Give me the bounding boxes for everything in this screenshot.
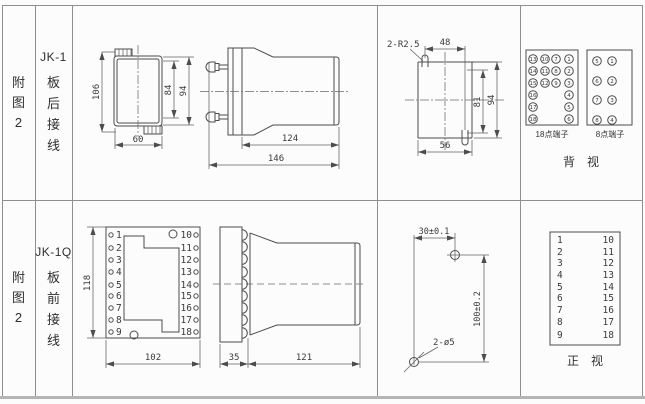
- dim-60-label: 60: [133, 135, 144, 145]
- row2-figure-label: 附 图 2: [12, 268, 25, 328]
- terminal-number: 8: [554, 69, 558, 75]
- dim-56-label: 56: [440, 141, 451, 151]
- table-cell: 8: [557, 317, 563, 328]
- terminal-label: 2: [116, 243, 122, 254]
- row2-model-cell: JK-1Q 板 前 接 线: [35, 200, 72, 396]
- grid-col-divider-3: [377, 5, 378, 396]
- terminal-label: 11: [181, 243, 193, 254]
- terminal-number: 17: [530, 105, 537, 111]
- table-cell: 9: [557, 330, 563, 341]
- dim-118-label: 118: [83, 275, 93, 291]
- table-cell: 16: [603, 305, 615, 316]
- slot-note-label: 2-R2.5: [387, 40, 420, 50]
- table-left-column: 1 2 3 4 5 6 7 8 9: [557, 235, 563, 341]
- panel-cutout-drawing: 48 2-R2.5 81 94 56: [383, 32, 517, 162]
- row1-model-label: JK-1: [40, 50, 67, 64]
- terminal-label: 13: [181, 267, 192, 278]
- terminal-label: 3: [116, 255, 122, 266]
- row2-wiring-label: 板 前 接 线: [47, 267, 60, 351]
- table-cell: 13: [603, 270, 614, 281]
- terminal-number: 12: [542, 81, 549, 87]
- front-right-terminals: 10 11 12 13 14 15 16 17 18: [181, 230, 199, 338]
- terminal-label: 18: [181, 327, 193, 338]
- front-terminal-table: 1 2 3 4 5 6 7 8 9 10 11 12 13 14 15 16 1…: [530, 225, 645, 375]
- side-view-drawing: 124 146: [200, 36, 352, 172]
- terminal-label: 12: [181, 255, 192, 266]
- terminal-circles-18: 13 10 7 1 14 11 8 2 15 12 9 3 16 4 17 5 …: [529, 55, 574, 124]
- table-cell: 6: [557, 293, 563, 304]
- case-body: [200, 48, 350, 135]
- dim-124-label: 124: [282, 134, 298, 144]
- row1-model-cell: JK-1 板 后 接 线: [35, 5, 72, 200]
- terminal-number: 10: [542, 57, 549, 63]
- table-right-column: 10 11 12 13 14 15 16 17 18: [603, 235, 615, 341]
- terminal-number: 5: [567, 105, 571, 111]
- rear-view-drawing: 106 84 94 60: [93, 36, 205, 162]
- terminal-label: 4: [116, 267, 122, 278]
- dim-48-label: 48: [440, 38, 451, 48]
- table-cell: 11: [603, 247, 615, 258]
- terminal-number: 3: [610, 98, 614, 104]
- terminal-number: 2: [567, 69, 571, 75]
- terminal-number: 3: [567, 81, 571, 87]
- terminal-label: 14: [181, 280, 193, 291]
- terminal-label: 10: [181, 230, 193, 241]
- terminal-label: 7: [116, 303, 122, 314]
- terminal-label: 9: [116, 327, 122, 338]
- terminal-number: 1: [610, 59, 614, 65]
- dim-94b-label: 94: [487, 95, 497, 106]
- dim-106-label: 106: [92, 84, 102, 100]
- rear-view-dimensions: 106 84 94 60: [92, 52, 194, 149]
- terminal-label: 8: [116, 315, 122, 326]
- dim-81-label: 81: [473, 97, 483, 108]
- row1-figure-label: 附 图 2: [12, 73, 25, 133]
- terminal-number: 14: [530, 69, 537, 75]
- dim-35-label: 35: [229, 353, 240, 363]
- terminal-number: 16: [530, 93, 537, 99]
- front-view-drawing: 1 2 3 4 5 6 7 8 9 10 11 12 13 14 15 16 1…: [85, 222, 217, 374]
- technical-sheet: 附 图 2 JK-1 板 后 接 线 附 图 2 JK-1Q 板 前 接 线 1…: [0, 0, 645, 404]
- front-left-terminals: 1 2 3 4 5 6 7 8 9: [109, 230, 122, 338]
- dim-146-label: 146: [268, 154, 284, 164]
- terminal-number: 6: [567, 117, 571, 123]
- terminal-label: 16: [181, 303, 193, 314]
- dim-102-label: 102: [145, 353, 161, 363]
- grid-row-divider: [2, 200, 643, 201]
- row2-figure-cell: 附 图 2: [2, 200, 35, 396]
- row1-wiring-label: 板 后 接 线: [47, 72, 60, 156]
- table-cell: 2: [557, 247, 563, 258]
- table-cell: 1: [557, 235, 563, 246]
- rear-terminal-diagrams: 13 10 7 1 14 11 8 2 15 12 9 3 16 4 17 5 …: [520, 40, 645, 175]
- terminal-label: 5: [116, 280, 122, 291]
- table-cell: 10: [603, 235, 615, 246]
- table-cell: 7: [557, 305, 563, 316]
- front-view-caption: 正 视: [567, 353, 603, 368]
- table-cell: 14: [603, 282, 615, 293]
- case-outline: [114, 45, 162, 137]
- table-cell: 5: [557, 282, 563, 293]
- terminal-18pt-box: 13 10 7 1 14 11 8 2 15 12 9 3 16 4 17 5 …: [526, 50, 578, 139]
- terminal-label: 1: [116, 230, 122, 241]
- row1-figure-cell: 附 图 2: [2, 5, 35, 200]
- dim-100-label: 100±0.2: [473, 291, 483, 327]
- terminal-circles-8: 5 1 6 2 7 3 8 4: [593, 57, 617, 125]
- terminal-label: 6: [116, 291, 122, 302]
- terminal-number: 15: [530, 81, 537, 87]
- terminal-number: 6: [595, 79, 599, 85]
- terminal-number: 4: [567, 93, 571, 99]
- terminal-8pt-caption: 8点端子: [596, 129, 624, 139]
- dim-30-label: 30±0.1: [419, 227, 450, 237]
- terminal-number: 5: [595, 59, 599, 65]
- row2-model-label: JK-1Q: [35, 245, 72, 259]
- terminal-number: 2: [610, 79, 614, 85]
- dim-94-label: 94: [179, 86, 189, 97]
- table-cell: 18: [603, 330, 615, 341]
- grid-col-divider-2: [72, 5, 73, 396]
- terminal-18pt-caption: 18点端子: [536, 129, 569, 139]
- terminal-number: 9: [554, 81, 558, 87]
- grid-bottom-border: [0, 396, 645, 399]
- terminal-number: 8: [595, 118, 599, 124]
- case-body-front-mount: [213, 227, 365, 342]
- terminal-8pt-box: 5 1 6 2 7 3 8 4 8点端子: [587, 50, 632, 139]
- drilling-plan-drawing: 30±0.1 100±0.2 2-ø5: [388, 222, 515, 380]
- table-cell: 4: [557, 270, 563, 281]
- terminal-number: 13: [530, 57, 537, 63]
- terminal-number: 1: [567, 57, 571, 63]
- grid-top-border: [2, 5, 643, 6]
- rear-view-caption: 背 视: [563, 154, 599, 169]
- dim-121-label: 121: [296, 353, 312, 363]
- table-cell: 3: [557, 258, 563, 269]
- terminal-number: 18: [530, 117, 537, 123]
- holes-note-label: 2-ø5: [433, 338, 455, 348]
- front-side-view-drawing: 35 121: [213, 222, 365, 374]
- table-cell: 15: [603, 293, 614, 304]
- table-cell: 17: [603, 317, 614, 328]
- terminal-number: 7: [595, 98, 599, 104]
- terminal-number: 7: [554, 57, 558, 63]
- table-cell: 12: [603, 258, 614, 269]
- drill-dimensions: 30±0.1 100±0.2 2-ø5: [414, 227, 484, 362]
- dim-84-label: 84: [164, 85, 174, 96]
- terminal-label: 17: [181, 315, 192, 326]
- terminal-number: 11: [542, 69, 549, 75]
- front-side-dimensions: 35 121: [220, 327, 360, 368]
- terminal-number: 4: [610, 118, 614, 124]
- terminal-label: 15: [181, 291, 192, 302]
